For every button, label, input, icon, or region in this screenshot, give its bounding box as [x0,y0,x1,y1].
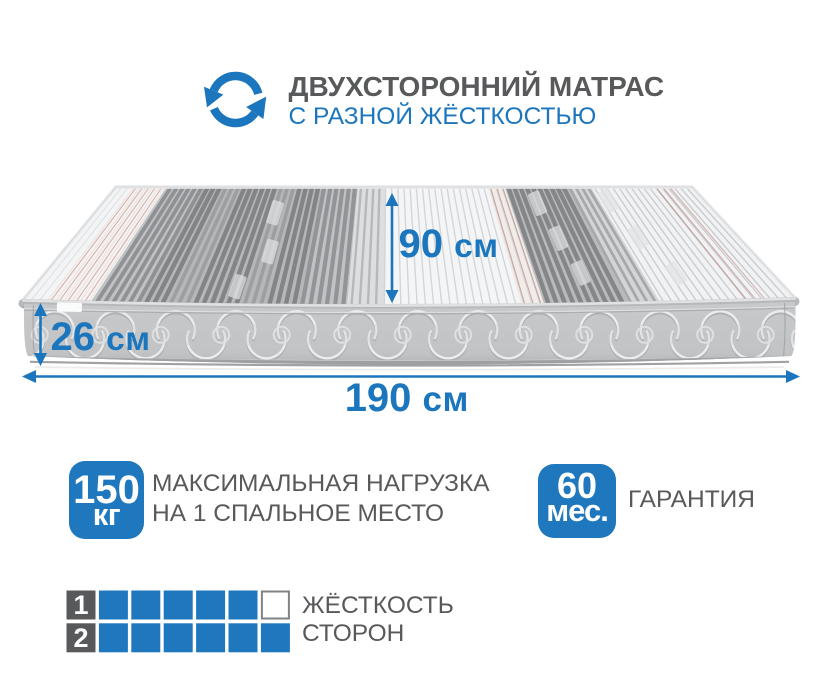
svg-text:2: 2 [73,623,88,653]
svg-text:1: 1 [73,590,88,620]
